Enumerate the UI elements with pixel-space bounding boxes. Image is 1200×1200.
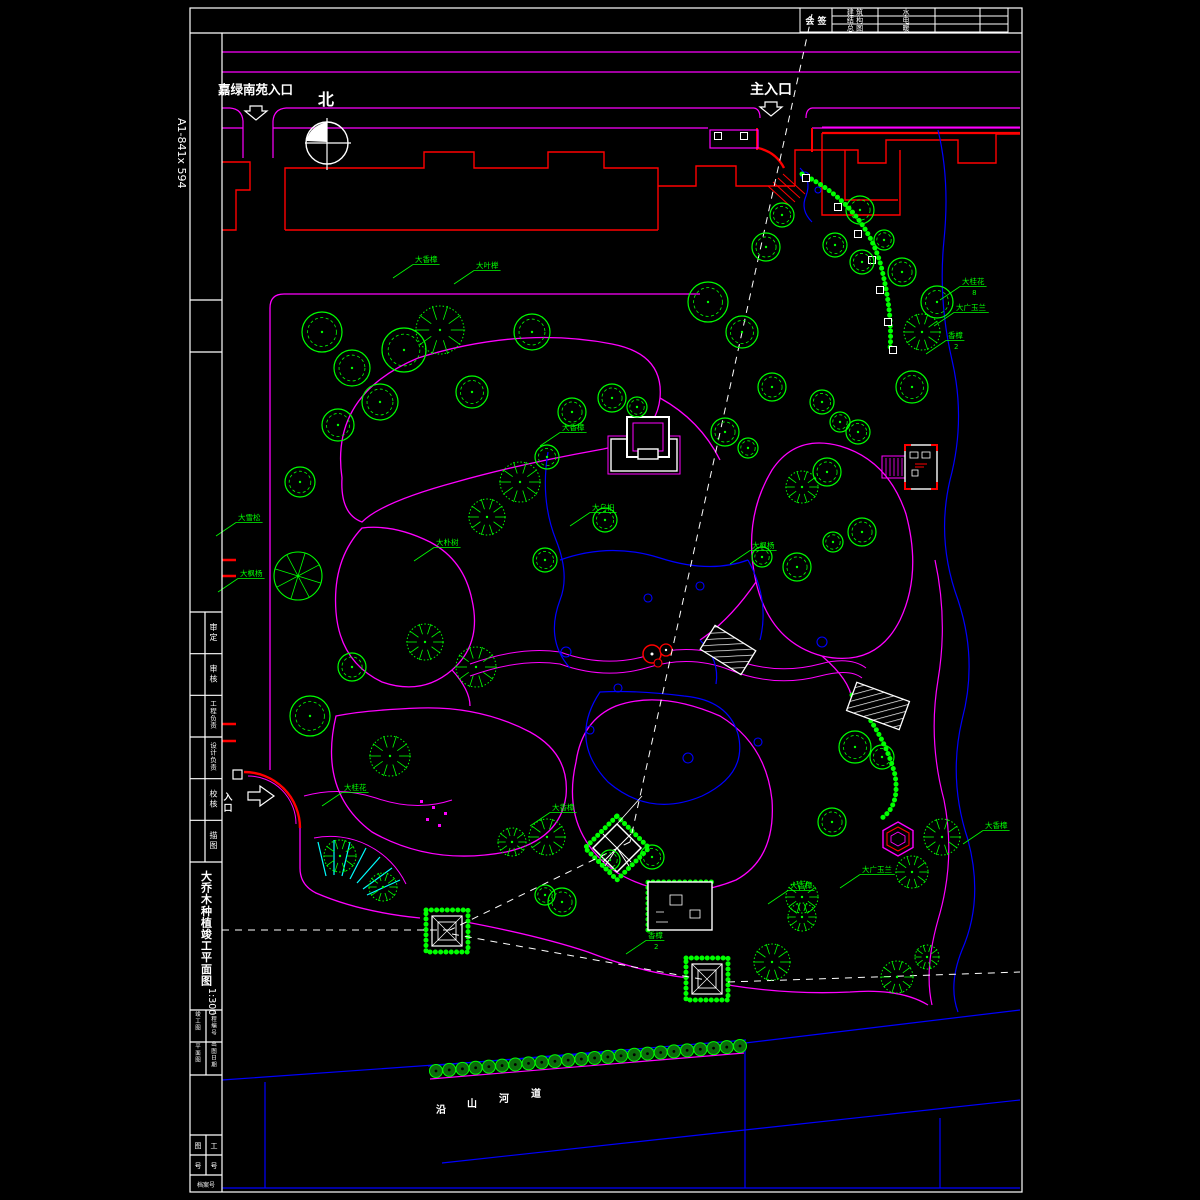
tree-branch [459, 672, 469, 679]
pergola-square-2 [692, 964, 722, 994]
tree-branch [384, 736, 388, 747]
tree-symbol [850, 250, 874, 274]
sub-char: 出 [211, 1040, 217, 1048]
hedge-dot [659, 1051, 662, 1054]
tree-center [339, 855, 341, 857]
tree-symbol [368, 873, 397, 901]
west-entrance-char: 入 [222, 792, 232, 803]
tree-branch [936, 845, 939, 855]
tree-branch [388, 891, 395, 896]
title-strip-text: 审定审核工程负责设计负责校核描图大乔木种植竣工平面图1:300竣工图工程编号平面… [195, 622, 218, 1189]
tree-symbol [528, 819, 566, 855]
river-char: 沿 [436, 1103, 446, 1116]
tree-branch [397, 761, 407, 768]
hedge-shrub [628, 1048, 641, 1061]
tree-center [636, 406, 638, 408]
tree-branch [527, 487, 537, 494]
tree-center [299, 481, 301, 483]
hedge-shrub [548, 1055, 561, 1068]
strip-char: 审 [210, 664, 218, 674]
tree-branch [481, 525, 484, 535]
tree-center [351, 367, 353, 369]
hedge-dot [633, 1053, 636, 1056]
tree-symbol [369, 736, 411, 776]
side-entrance-label: 嘉绿南苑入口 [217, 82, 293, 97]
signature-label: 会 签 [805, 15, 827, 27]
river-char: 道 [531, 1087, 541, 1100]
tree-center [801, 896, 803, 898]
tree-center [651, 856, 653, 858]
tree-branch [914, 856, 917, 865]
tree-branch [550, 845, 553, 855]
tree-symbol [770, 203, 794, 227]
tree-branch [470, 647, 474, 658]
tree-branch [419, 650, 422, 660]
strip-char: 核 [210, 674, 218, 684]
tree-branch [449, 315, 461, 323]
tree-center [801, 916, 803, 918]
plant-name: 大香樟 [415, 254, 438, 264]
tree-symbol [640, 845, 664, 869]
tree-branch [472, 506, 481, 512]
tree-center [796, 566, 798, 568]
plant-label: 大香樟 [963, 820, 1010, 844]
strip-row-label: 描图 [210, 830, 218, 850]
tree-branch [385, 873, 388, 881]
tree-branch [804, 471, 807, 480]
tree-branch [346, 860, 354, 866]
tree-branch [541, 845, 544, 855]
tree-branch [490, 525, 493, 535]
hedge-shrub [707, 1042, 720, 1055]
tree-branch [914, 879, 917, 888]
tree-branch [494, 506, 503, 512]
tree-branch [923, 962, 925, 969]
tree-center [475, 666, 477, 668]
strip-row-label: 审核 [210, 664, 218, 684]
tree-symbol [726, 316, 758, 348]
hedge-shrub [562, 1054, 575, 1067]
plant-leader-tail [454, 271, 474, 285]
tree-symbol [880, 961, 914, 993]
tree-symbol [896, 371, 928, 403]
strip-char: 责 [210, 721, 217, 730]
tree-branch [532, 826, 541, 832]
tree-center [747, 447, 749, 449]
tree-symbol [290, 696, 330, 736]
tree-branch [397, 744, 407, 751]
tree-branch [916, 314, 919, 324]
tree-center [859, 209, 861, 211]
tree-symbol [535, 445, 559, 469]
tree-center [609, 859, 611, 861]
strip-sub-cell: 平面图 [195, 1043, 201, 1064]
strip-char: 图 [210, 841, 218, 850]
bottom-cell-char: 工 [211, 1142, 218, 1150]
tree-branch [385, 893, 388, 901]
tree-branch [378, 893, 381, 901]
stepping-stone [715, 133, 722, 140]
strip-char: 核 [210, 799, 218, 809]
plant-label: 大香樟 [768, 880, 815, 904]
hedge-dot [646, 1052, 649, 1055]
hedge-dot [620, 1054, 623, 1057]
hedge-dot [540, 1061, 543, 1064]
stepping-stone [741, 133, 748, 140]
tree-branch [503, 470, 513, 477]
hedge-dot [514, 1063, 517, 1066]
tree-center [883, 239, 885, 241]
tree-branch [807, 921, 814, 926]
tree-center [424, 641, 426, 643]
tree-branch [804, 923, 807, 931]
tree-branch [757, 967, 766, 973]
tree-symbol [846, 420, 870, 444]
tree-symbol [818, 808, 846, 836]
discipline-cell: 总 图 [847, 24, 863, 33]
tree-symbol [285, 467, 315, 497]
tree-symbol [839, 731, 871, 763]
tree-branch [949, 842, 958, 848]
tree-branch [892, 961, 895, 970]
strip-row-label: 校核 [210, 789, 218, 809]
plant-name: 大香樟 [790, 880, 813, 890]
tree-branch [483, 672, 493, 679]
hedge-dot [699, 1048, 702, 1051]
tree-branch [883, 981, 891, 987]
tree-branch [797, 923, 800, 931]
tree-center [901, 271, 903, 273]
tree-symbol [874, 230, 894, 250]
tree-branch [766, 970, 769, 980]
discipline-cell: 结 构 [847, 16, 863, 25]
tree-symbol [753, 944, 791, 980]
tree-branch [898, 862, 906, 868]
stepping-stone [835, 204, 842, 211]
west-entrance-char: 口 [223, 803, 232, 814]
tree-branch [346, 846, 354, 852]
hedge-dot [593, 1057, 596, 1060]
hedge-dot [487, 1065, 490, 1068]
sheet-frame [190, 8, 1022, 1192]
tree-symbol [787, 903, 816, 931]
tree-branch [494, 522, 503, 528]
plant-name: 大朴树 [436, 537, 459, 547]
stream-rock-feature [643, 644, 672, 667]
plant-count: 8 [972, 289, 976, 297]
tree-branch [917, 950, 923, 954]
west-entrance-text: 入口 [222, 792, 232, 814]
bottom-span-cell: 档案号 [197, 1181, 215, 1189]
hedge-shrub [641, 1047, 654, 1060]
plant-name: 大雪松 [238, 512, 261, 522]
strip-sub-cell: 工程编号 [211, 1009, 217, 1036]
tree-branch [929, 337, 938, 343]
tree-branch [808, 477, 816, 483]
plant-label: 大香樟 [393, 254, 440, 278]
tree-branch [500, 846, 507, 851]
tree-branch [335, 840, 338, 849]
tree-symbol [921, 286, 953, 318]
tree-branch [903, 981, 911, 987]
plant-leader-tail [414, 548, 434, 562]
hedge-dot [606, 1055, 609, 1058]
tree-branch [479, 676, 483, 687]
tree-symbol [758, 373, 786, 401]
sub-char: 竣 [195, 1010, 201, 1018]
tree-center [544, 559, 546, 561]
plant-name: 大香樟 [985, 820, 1008, 830]
tree-symbol [903, 314, 941, 350]
tree-center [765, 246, 767, 248]
plant-name: 大桂花 [962, 276, 985, 286]
bridge-plank-1 [700, 625, 756, 674]
strip-char: 责 [210, 762, 217, 771]
tree-branch [788, 901, 796, 907]
tree-branch [373, 761, 383, 768]
stepping-stone [855, 231, 862, 238]
tree-branch [384, 765, 388, 776]
plant-count: 2 [954, 343, 958, 351]
counter-cell: 水 [903, 8, 910, 17]
plant-leader-tail [768, 891, 788, 905]
tree-branch [443, 306, 447, 320]
tree-center [832, 541, 834, 543]
plant-leader-tail [570, 513, 590, 527]
tree-branch [903, 967, 911, 973]
tree-center [941, 836, 943, 838]
tree-branch [797, 471, 800, 480]
tree-branch [949, 826, 958, 832]
sub-char: 图 [195, 1024, 201, 1032]
tree-branch [766, 944, 769, 954]
tree-center [761, 556, 763, 558]
tree-center [861, 261, 863, 263]
tree-center [382, 886, 384, 888]
tree-branch [507, 828, 510, 836]
plant-name: 大叶榉 [476, 260, 499, 270]
stepping-stones [715, 133, 897, 354]
hedge-dot [580, 1058, 583, 1061]
plant-label: 大朴树 [414, 537, 461, 561]
tree-branch [925, 340, 928, 350]
strip-row-label: 工程负责 [210, 700, 217, 730]
strip-char: 审 [210, 622, 218, 632]
tree-center [826, 471, 828, 473]
garden-building [648, 882, 712, 930]
hedge-shrub [694, 1043, 707, 1056]
entrance-arrows [233, 102, 782, 806]
water-lines [222, 130, 1020, 1188]
sub-char: 号 [211, 1029, 217, 1036]
plant-name: 大广玉兰 [956, 302, 986, 312]
tree-branch [929, 945, 931, 952]
hedge-dot [435, 1070, 438, 1073]
tree-branch [393, 765, 397, 776]
tree-branch [420, 315, 432, 323]
river-name-text: 沿山河道 [436, 1087, 541, 1116]
tree-symbol [783, 553, 811, 581]
tree-branch [923, 945, 925, 952]
tree-branch [945, 845, 948, 855]
tree-symbol [322, 409, 354, 441]
strip-sub-cell: 出图日期 [211, 1040, 217, 1068]
tree-center [911, 386, 913, 388]
stepping-stone [803, 175, 810, 182]
tree-symbol [870, 745, 894, 769]
tree-center [531, 331, 533, 333]
bottom-cell-char: 图 [195, 1142, 202, 1150]
tree-center [926, 956, 928, 958]
tree-branch [797, 494, 800, 503]
tree-symbol [497, 828, 526, 856]
tree-branch [335, 863, 338, 872]
side-entrance-arrow-icon [245, 106, 267, 120]
tree-center [321, 331, 323, 333]
plant-leader-tail [218, 579, 238, 593]
title-char: 图 [201, 974, 212, 987]
tree-branch [927, 826, 936, 832]
hedge-dot [725, 1046, 728, 1049]
tree-center [741, 331, 743, 333]
sub-char: 程 [211, 1015, 217, 1023]
tree-symbol [823, 233, 847, 257]
plant-leader-tail [322, 793, 342, 807]
bottom-cell-char: 号 [211, 1162, 218, 1170]
tree-center [821, 401, 823, 403]
tree-branch [907, 321, 916, 327]
tree-symbol [535, 885, 555, 905]
hedge-shrub [615, 1049, 628, 1062]
hedge-shrub [522, 1057, 535, 1070]
north-label: 北 [318, 90, 334, 109]
counter-cell: 暖 [903, 25, 910, 33]
plant-name: 大香樟 [562, 422, 585, 432]
sub-char: 日 [211, 1055, 217, 1062]
tree-branch [342, 840, 345, 849]
tree-branch [503, 487, 513, 494]
tree-branch [907, 337, 916, 343]
tree-center [921, 331, 923, 333]
tree-center [403, 349, 405, 351]
hedge-shrub [430, 1065, 443, 1078]
tree-branch [907, 879, 910, 888]
tree-symbol [785, 471, 819, 503]
tree-branch [432, 340, 436, 354]
plant-leader-tail [216, 523, 236, 537]
hedge-dot [554, 1060, 557, 1063]
hedge-shrub [575, 1053, 588, 1066]
tree-branch [479, 647, 483, 658]
discipline-cell: 建 筑 [847, 8, 863, 17]
tree-center [707, 301, 709, 303]
hedge-dot [461, 1067, 464, 1070]
plant-label: 大广玉兰 [840, 864, 895, 888]
cad-drawing-canvas[interactable]: 大香樟大叶榉大香樟大乌桕大朴树大雪松大枫杨大桂花大香樟香樟2大桂花8大广玉兰香樟… [0, 0, 1200, 1200]
tree-symbol [406, 624, 444, 660]
tree-branch [483, 655, 493, 662]
tree-branch [899, 984, 902, 993]
tree-center [519, 481, 521, 483]
tree-branch [898, 876, 906, 882]
west-entrance-arrow-icon [248, 786, 274, 806]
tree-center [781, 214, 783, 216]
tree-branch [326, 846, 334, 852]
tree-center [486, 516, 488, 518]
tree-center [881, 756, 883, 758]
tree-center [389, 755, 391, 757]
tree-symbol [598, 384, 626, 412]
hedge-dot [739, 1045, 742, 1048]
tree-symbol [888, 258, 916, 286]
tree-center [309, 715, 311, 717]
tree-center [439, 329, 441, 331]
tree-branch [790, 908, 797, 913]
tree-branch [804, 494, 807, 503]
tree-branch [916, 340, 919, 350]
tree-branch [514, 828, 517, 836]
strip-char: 校 [210, 789, 218, 799]
hedge-shrub [720, 1041, 733, 1054]
tree-branch [410, 647, 419, 653]
tree-branch [523, 462, 527, 473]
tree-branch [326, 860, 334, 866]
tree-symbol [514, 314, 550, 350]
hedge-dot [474, 1066, 477, 1069]
stepping-stone [890, 347, 897, 354]
tree-branch [449, 336, 461, 344]
tree-branch [410, 631, 419, 637]
hedge-shrub [456, 1062, 469, 1075]
tree-branch [432, 647, 441, 653]
tree-symbol [627, 397, 647, 417]
plant-name: 香樟 [648, 930, 663, 940]
tree-symbol [415, 306, 465, 354]
central-pavilion [608, 417, 680, 474]
plant-name: 香樟 [948, 330, 963, 340]
tree-branch [899, 961, 902, 970]
tree-branch [918, 876, 926, 882]
river-hedge [430, 1040, 747, 1078]
plant-name: 大乌桕 [592, 502, 615, 512]
tree-branch [443, 340, 447, 354]
tree-branch [527, 470, 537, 477]
tree-center [911, 871, 913, 873]
tree-symbol [923, 819, 961, 855]
tree-symbol [752, 233, 780, 261]
tree-center [771, 386, 773, 388]
north-compass [305, 118, 351, 170]
tree-branch [775, 970, 778, 980]
tree-center [337, 424, 339, 426]
tree-symbol [738, 438, 758, 458]
hedge-dot [527, 1062, 530, 1065]
tree-symbol [895, 856, 929, 888]
tree-center [546, 456, 548, 458]
strip-row-label: 设计负责 [210, 740, 217, 771]
plant-name: 大桂花 [344, 782, 367, 792]
plant-leader-tail [540, 433, 560, 447]
plant-leader-tail [840, 875, 860, 889]
tree-symbol [848, 518, 876, 546]
counter-cell: 电 [903, 16, 910, 25]
tree-center [544, 894, 546, 896]
tree-symbol [711, 418, 739, 446]
tree-branch [419, 624, 422, 634]
tree-center [936, 301, 938, 303]
sub-char: 期 [211, 1061, 217, 1068]
tree-branch [432, 631, 441, 637]
